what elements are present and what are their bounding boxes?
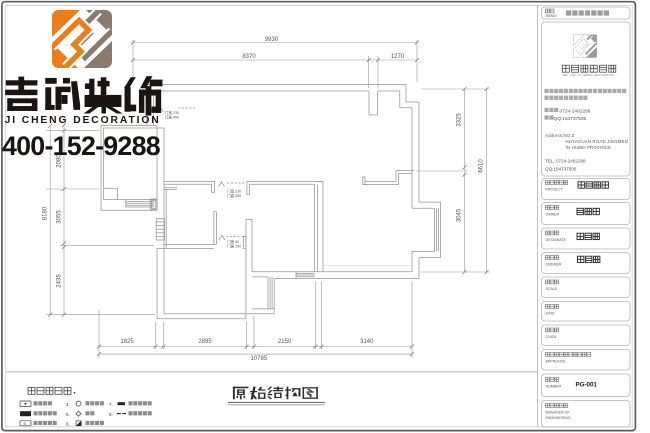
svg-text:PG-001: PG-001 — [576, 382, 598, 389]
svg-text:IN HUBEI PROVINCE: IN HUBEI PROVINCE — [566, 145, 612, 150]
svg-text:JI CHENG DECORATION: JI CHENG DECORATION — [5, 115, 161, 126]
svg-text:HUYAGUAN ROAD JINGMEN: HUYAGUAN ROAD JINGMEN — [566, 139, 628, 144]
svg-text:BEI JING JI CHENG DECORATION: BEI JING JI CHENG DECORATION — [563, 73, 614, 77]
svg-text:DREWER: DREWER — [546, 263, 562, 267]
svg-text:6610: 6610 — [479, 159, 485, 173]
svg-text:1825: 1825 — [120, 339, 134, 345]
svg-text:6.: 6. — [66, 422, 70, 427]
svg-text:PROJECT: PROJECT — [546, 188, 564, 192]
svg-text:MANAGER OF: MANAGER OF — [546, 411, 571, 415]
svg-text:DATE: DATE — [546, 312, 556, 316]
svg-text:10785: 10785 — [250, 356, 267, 362]
svg-text:ENGINEERING: ENGINEERING — [546, 416, 571, 420]
svg-text:门高 450: 门高 450 — [227, 193, 241, 198]
svg-text:APPROVED: APPROVED — [546, 360, 566, 364]
svg-text:门宽 230: 门宽 230 — [227, 189, 241, 194]
svg-text:Address:NO.2: Address:NO.2 — [545, 133, 575, 138]
svg-text:CHICK: CHICK — [546, 335, 558, 339]
svg-text:3045: 3045 — [457, 208, 463, 222]
svg-text:DESIGNATE: DESIGNATE — [546, 238, 567, 242]
svg-text:门宽 230: 门宽 230 — [165, 110, 179, 115]
svg-text:TEL: 0724-2482288: TEL: 0724-2482288 — [545, 159, 586, 164]
svg-text:3055: 3055 — [57, 210, 63, 224]
svg-text:7.: 7. — [109, 402, 113, 407]
svg-text:门宽 80: 门宽 80 — [227, 239, 239, 244]
svg-text:QQ:154737506: QQ:154737506 — [554, 116, 587, 122]
svg-text:NUMBER: NUMBER — [546, 385, 562, 389]
svg-text:OWNER: OWNER — [546, 213, 560, 217]
svg-text:8180: 8180 — [43, 206, 49, 220]
svg-text:门高 200: 门高 200 — [227, 243, 241, 248]
svg-text:2895: 2895 — [198, 339, 212, 345]
svg-text:QQ:154737506: QQ:154737506 — [545, 167, 577, 172]
svg-text:8.: 8. — [109, 412, 113, 417]
svg-text:8370: 8370 — [242, 54, 256, 60]
svg-text:400-152-9288: 400-152-9288 — [2, 131, 161, 161]
svg-text:门高 450: 门高 450 — [165, 114, 179, 119]
svg-text:2150: 2150 — [278, 339, 292, 345]
svg-text:3140: 3140 — [360, 339, 374, 345]
svg-text:MEMO: MEMO — [546, 14, 557, 18]
svg-text:1270: 1270 — [391, 54, 405, 60]
svg-text:0724-2482288: 0724-2482288 — [560, 108, 591, 114]
svg-text:4.: 4. — [66, 402, 70, 407]
svg-text:5.: 5. — [66, 412, 70, 417]
svg-text:3325: 3325 — [457, 113, 463, 127]
svg-text:9930: 9930 — [265, 37, 279, 43]
svg-text:SCALE: SCALE — [546, 287, 558, 291]
svg-text:2435: 2435 — [57, 274, 63, 288]
